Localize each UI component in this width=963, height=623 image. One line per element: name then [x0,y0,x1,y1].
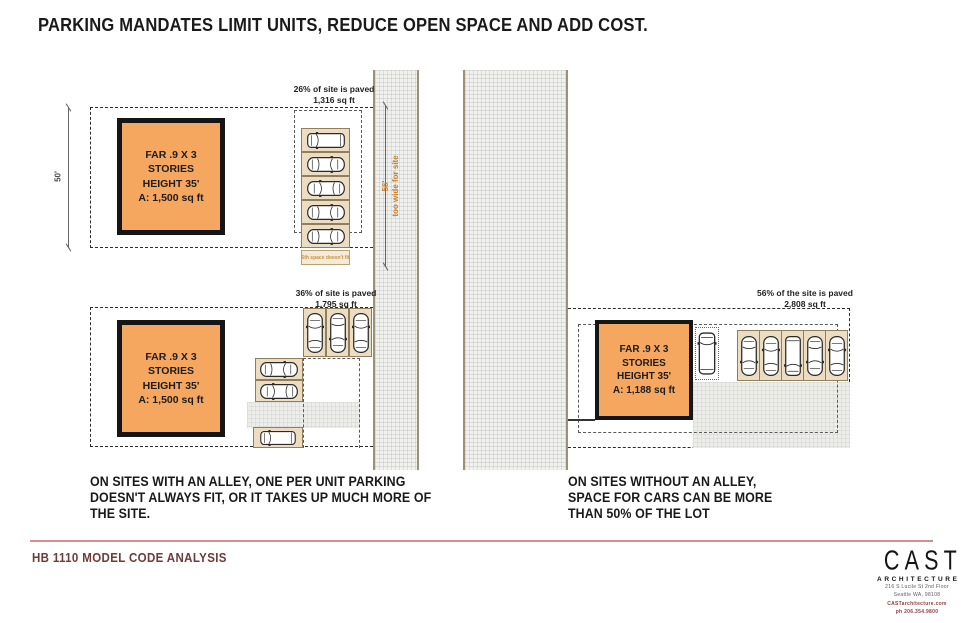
building-height-line: HEIGHT 35' [143,379,200,393]
building-area-line: A: 1,188 sq ft [613,384,675,398]
site1-paved-label: 26% of site is paved 1,316 sq ft [291,84,377,105]
car-icon [762,334,780,378]
building-far-line: FAR .9 X 3 STORIES [122,148,220,176]
building-area-line: A: 1,500 sq ft [138,191,203,205]
building-far-line: FAR .9 X 3 STORIES [599,343,689,370]
site1-building: FAR .9 X 3 STORIES HEIGHT 35' A: 1,500 s… [117,118,225,235]
van-icon [784,334,802,378]
parking-stall [301,224,350,248]
cast-architecture-logo: CAST ARCHITECTURE 216 S Lucile St 2nd Fl… [872,545,962,616]
building-height-line: HEIGHT 35' [143,177,200,191]
parking-stall [349,308,372,357]
site1-empty-stall: 6th space doesn't fit [301,250,350,265]
alley-width-note: 56' too wide for site [361,144,421,228]
parking-stall [301,176,350,200]
parking-stall [255,380,303,402]
car-icon [329,311,347,355]
parking-stall [301,152,350,176]
logo-wordmark: CAST [884,545,956,577]
car-icon [305,228,347,245]
parking-stall [303,308,326,357]
parking-stall [255,358,303,380]
car-icon [828,334,846,378]
site3-building: FAR .9 X 3 STORIES HEIGHT 35' A: 1,188 s… [595,320,693,420]
page-title: PARKING MANDATES LIMIT UNITS, REDUCE OPE… [38,15,648,36]
paved-area: 1,316 sq ft [291,95,377,106]
paved-percent: 26% of site is paved [291,84,377,95]
building-area-line: A: 1,500 sq ft [138,393,203,407]
slide-canvas: PARKING MANDATES LIMIT UNITS, REDUCE OPE… [0,0,963,623]
van-icon [305,132,347,149]
car-icon [806,334,824,378]
car-icon [258,361,300,378]
van-icon [257,430,299,446]
footer-title: HB 1110 MODEL CODE ANALYSIS [32,551,227,565]
logo-phone: ph 206.354.9800 [872,609,962,616]
site1-height-dimension-label: 50' [54,165,63,189]
site2-paved-label: 36% of site is paved 1,795 sq ft [294,288,378,309]
footer-divider [30,540,933,542]
site1-height-dimension-line [68,107,69,248]
caption-line: ON SITES WITH AN ALLEY, ONE PER UNIT PAR… [90,474,476,490]
car-icon [352,311,370,355]
parking-stall [326,308,349,357]
caption-right: ON SITES WITHOUT AN ALLEY, SPACE FOR CAR… [568,474,862,522]
car-icon [740,334,758,378]
parking-stall [781,330,804,381]
site3-paved-label: 56% of the site is paved 2,808 sq ft [735,288,875,309]
car-icon [305,204,347,221]
caption-line: SPACE FOR CARS CAN BE MORE [568,490,862,506]
parking-stall [825,330,848,381]
building-height-line: HEIGHT 35' [617,370,671,384]
caption-left: ON SITES WITH AN ALLEY, ONE PER UNIT PAR… [90,474,476,522]
paved-percent: 36% of site is paved [294,288,378,299]
parking-stall [301,128,350,152]
car-icon [305,156,347,173]
car-icon [258,383,300,400]
site2-paved-outline [303,358,360,448]
logo-address-line2: Seattle WA, 98108 [872,592,962,599]
alley-strip [373,70,419,470]
site2-building: FAR .9 X 3 STORIES HEIGHT 35' A: 1,500 s… [117,320,225,437]
logo-website: CASTarchitecture.com [872,601,962,608]
paved-percent: 56% of the site is paved [735,288,875,299]
parking-stall [253,427,303,448]
building-far-line: FAR .9 X 3 STORIES [122,350,220,378]
alley-width-dim: 56' [381,181,391,192]
paved-area: 2,808 sq ft [735,299,875,310]
alley-width-text: too wide for site [391,155,401,216]
parking-stall [803,330,826,381]
caption-line: THE SITE. [90,506,476,522]
caption-line: ON SITES WITHOUT AN ALLEY, [568,474,862,490]
parking-stall [695,327,719,380]
parking-stall [759,330,782,381]
empty-stall-note: 6th space doesn't fit [301,255,349,261]
parking-stall [737,330,760,381]
parking-stall [301,200,350,224]
caption-line: DOESN'T ALWAYS FIT, OR IT TAKES UP MUCH … [90,490,476,506]
logo-address-line1: 216 S Lucile St 2nd Floor [872,584,962,591]
site3-walk-line [568,419,595,421]
car-icon [305,180,347,197]
street-strip [463,70,568,470]
caption-line: THAN 50% OF THE LOT [568,506,862,522]
car-icon [306,311,324,355]
van-icon [698,331,717,377]
